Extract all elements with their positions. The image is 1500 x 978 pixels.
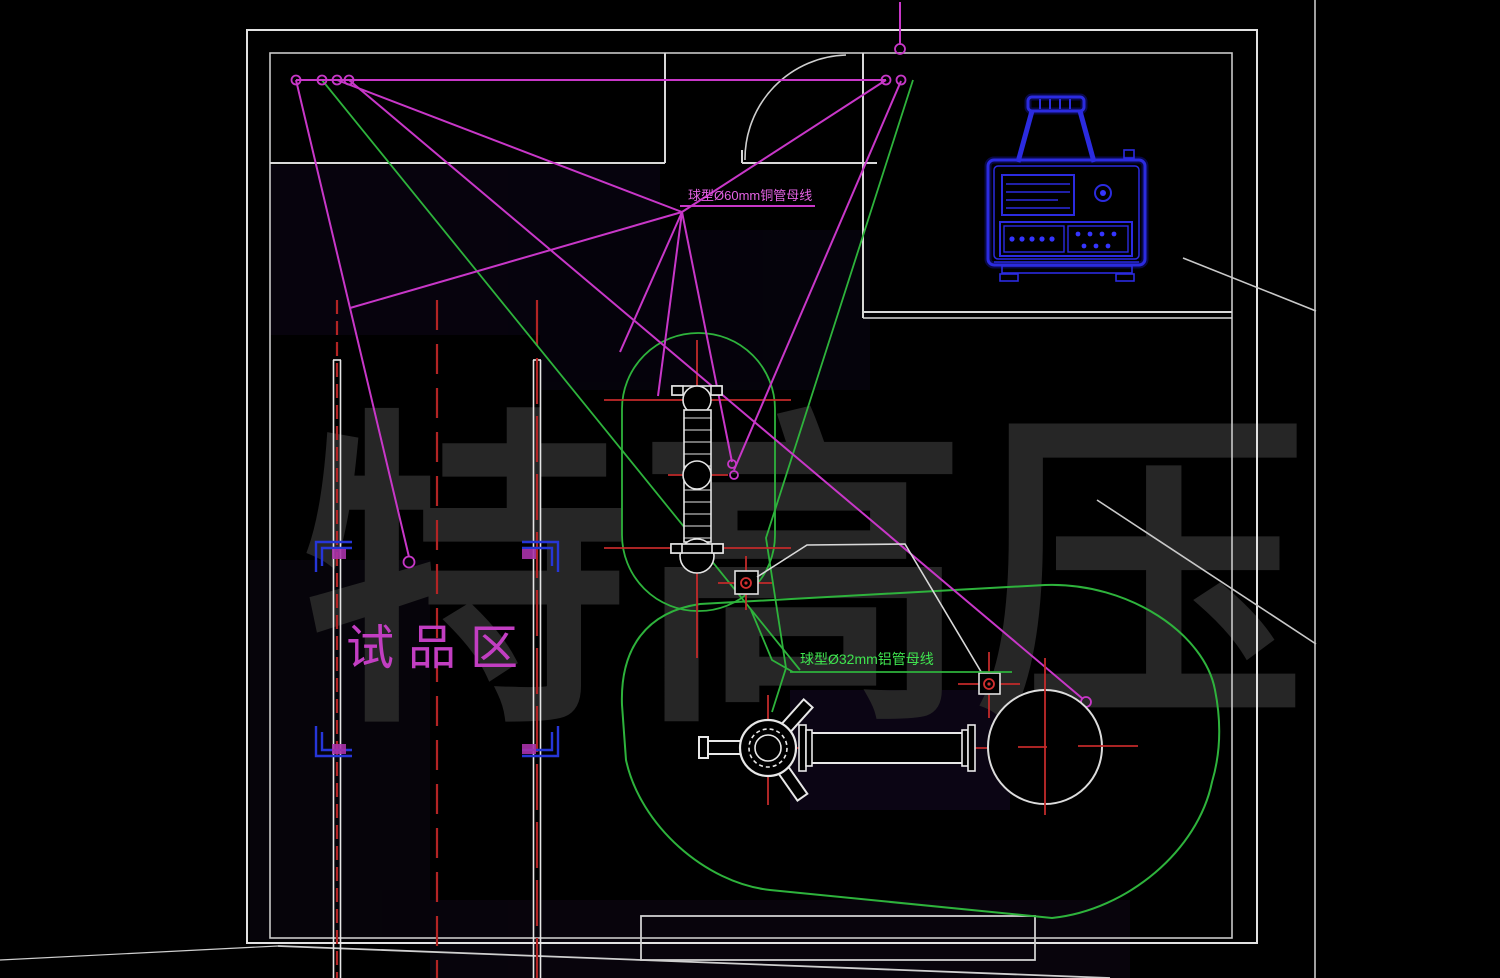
console-foot-right	[1116, 274, 1134, 281]
console-buttons	[1009, 232, 1116, 249]
label-specimen-area: 试品区	[346, 622, 532, 675]
leader-to-console	[1183, 258, 1316, 311]
door-swing-arc	[745, 55, 846, 160]
console-display	[1002, 175, 1074, 215]
label-green-busbar: 球型Ø32mm铝管母线	[800, 651, 934, 667]
console-foot-left	[1000, 274, 1018, 281]
cad-drawing: 特高压	[0, 0, 1500, 978]
bottom-diagonal-line-left	[0, 946, 278, 960]
cad-viewport[interactable]: 特高压	[0, 0, 1500, 978]
control-console	[988, 97, 1145, 281]
junction-square-1	[735, 571, 758, 594]
label-magenta-busbar: 球型Ø60mm铜管母线	[688, 188, 812, 203]
console-handle-arms	[1018, 111, 1094, 162]
